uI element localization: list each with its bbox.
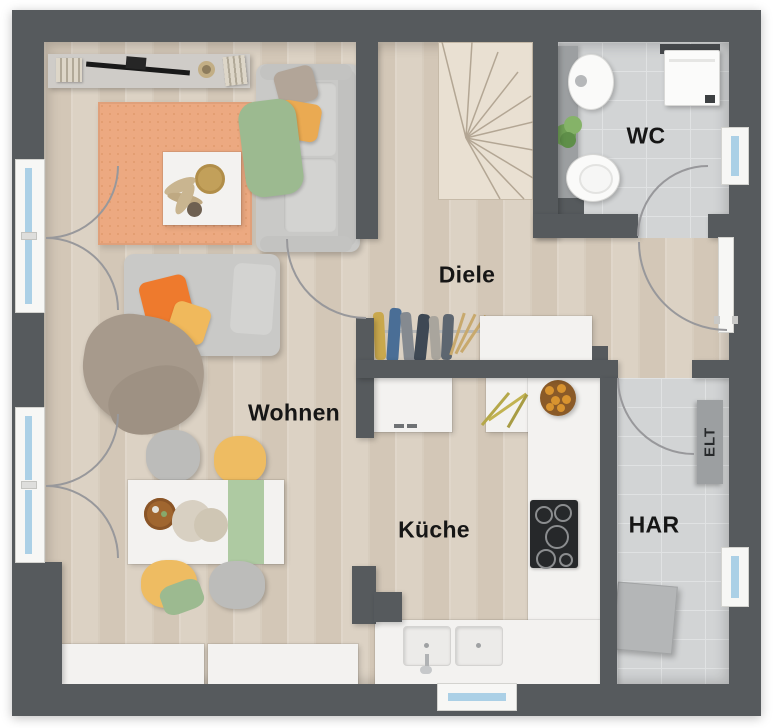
wc-window	[722, 128, 748, 184]
window-glass	[25, 240, 32, 304]
window-glass	[25, 168, 32, 232]
window-glass	[25, 490, 32, 554]
french-window	[16, 408, 44, 562]
window-handle	[22, 233, 36, 239]
room-label-wohnen: Wohnen	[248, 400, 340, 427]
room-label-har: HAR	[629, 512, 680, 539]
window-glass	[731, 556, 739, 598]
door-handle	[714, 316, 720, 324]
window-glass	[731, 136, 739, 176]
french-window	[16, 160, 44, 312]
window-glass	[25, 416, 32, 480]
entrance-door-leaf	[719, 238, 733, 332]
exterior-wall	[12, 10, 761, 716]
kitchen-window	[438, 684, 516, 710]
room-label-wc: WC	[627, 123, 666, 150]
har-window	[722, 548, 748, 606]
floor-plan: ELT	[0, 0, 775, 728]
window-handle	[22, 482, 36, 488]
door-handle	[732, 316, 738, 324]
room-label-diele: Diele	[439, 262, 495, 289]
window-glass	[448, 693, 506, 701]
room-label-kueche: Küche	[398, 517, 470, 544]
